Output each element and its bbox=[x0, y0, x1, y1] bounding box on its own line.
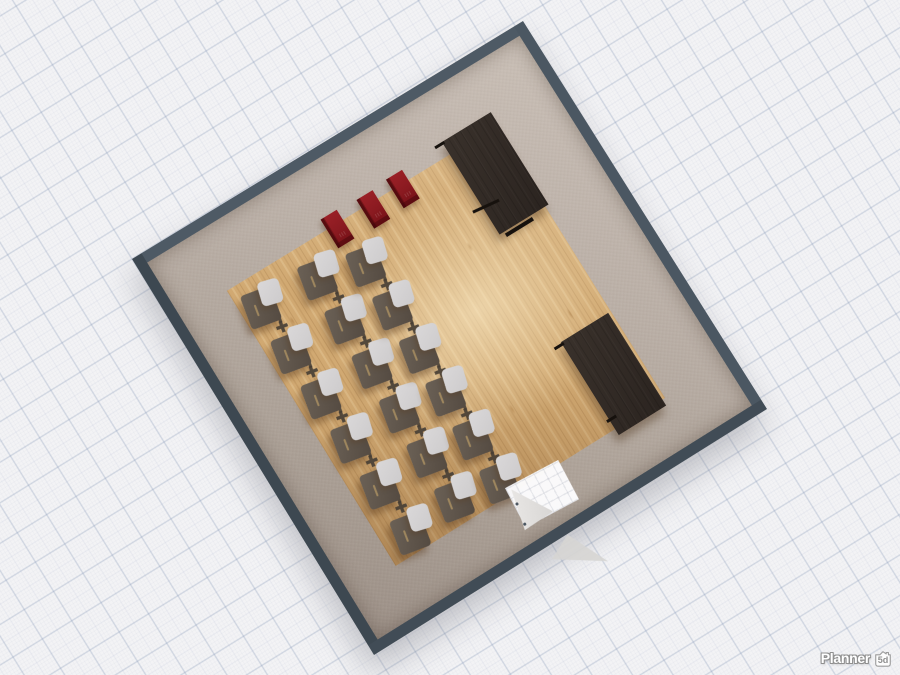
svg-text:5d: 5d bbox=[878, 655, 889, 665]
